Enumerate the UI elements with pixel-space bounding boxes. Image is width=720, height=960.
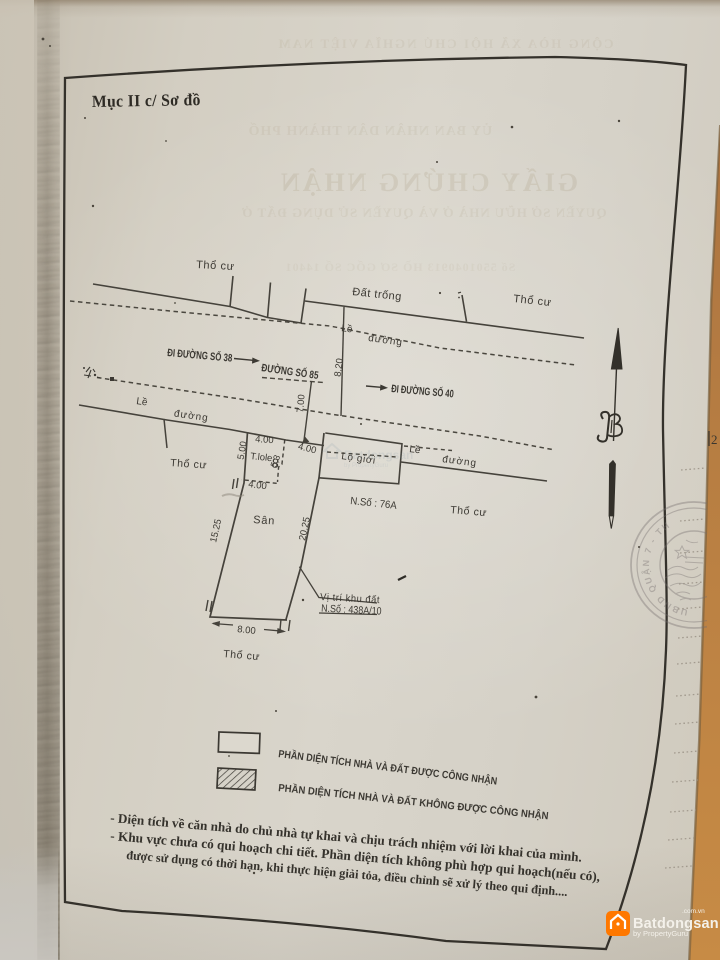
svg-text:QUYỀN SỞ HỮU NHÀ Ở VÀ QUYỀN SỬ: QUYỀN SỞ HỮU NHÀ Ở VÀ QUYỀN SỬ DỤNG ĐẤT …: [241, 205, 606, 220]
svg-text:Sân: Sân: [253, 514, 276, 528]
svg-text:GIẤY CHỨNG NHẬN: GIẤY CHỨNG NHẬN: [278, 168, 578, 197]
svg-text:PHẦN DIỆN TÍCH NHÀ VÀ ĐẤT KHÔ: PHẦN DIỆN TÍCH NHÀ VÀ ĐẤT KHÔNG ĐƯỢC CÔN…: [278, 781, 549, 823]
svg-text:Batdongsan: Batdongsan: [344, 448, 413, 462]
svg-text:Thổ cư: Thổ cư: [513, 293, 553, 309]
svg-text:5.00: 5.00: [236, 440, 250, 460]
svg-text:8.20: 8.20: [333, 358, 346, 378]
svg-text:N.Số : 76A: N.Số : 76A: [350, 495, 398, 512]
svg-text:by PropertyGuru: by PropertyGuru: [344, 463, 388, 469]
svg-text:Thổ cư: Thổ cư: [196, 259, 235, 273]
svg-text:by PropertyGuru: by PropertyGuru: [633, 929, 688, 938]
svg-text:2: 2: [711, 432, 718, 447]
svg-text:7.00: 7.00: [295, 394, 308, 413]
svg-text:N.Số : 438A/10: N.Số : 438A/10: [321, 603, 383, 618]
svg-text:Số 5501040913 HỒ SƠ GỐC SỐ 144: Số 5501040913 HỒ SƠ GỐC SỐ 14401: [285, 259, 516, 274]
svg-text:4.00: 4.00: [248, 479, 268, 492]
svg-text:PHẦN DIỆN TÍCH NHÀ VÀ ĐẤT ĐƯỢC: PHẦN DIỆN TÍCH NHÀ VÀ ĐẤT ĐƯỢC CÔNG NHẬN: [278, 747, 498, 787]
svg-text:đường: đường: [442, 454, 478, 469]
svg-text:8.00: 8.00: [237, 624, 257, 637]
svg-text:Đất trống: Đất trống: [352, 286, 403, 303]
svg-text:.com.vn: .com.vn: [682, 908, 705, 915]
svg-text:Thổ cư: Thổ cư: [450, 504, 488, 519]
svg-text:20.25: 20.25: [297, 516, 313, 542]
svg-text:Lề: Lề: [341, 322, 354, 335]
svg-text:Thổ cư: Thổ cư: [223, 648, 261, 663]
svg-text:Thổ cư: Thổ cư: [170, 457, 208, 472]
svg-text:Mục II c/ Sơ đồ: Mục II c/ Sơ đồ: [92, 89, 201, 111]
svg-text:ĐI ĐƯỜNG SỐ 38: ĐI ĐƯỜNG SỐ 38: [167, 346, 233, 365]
svg-text:CỘNG HÒA XÃ HỘI CHỦ NGHĨA VIỆT: CỘNG HÒA XÃ HỘI CHỦ NGHĨA VIỆT NAM: [276, 36, 613, 51]
svg-text:Lề: Lề: [136, 395, 149, 408]
svg-text:đường: đường: [367, 333, 403, 349]
svg-text:ỦY BAN NHÂN DÂN THÀNH PHỐ: ỦY BAN NHÂN DÂN THÀNH PHỐ: [248, 121, 493, 139]
svg-text:4.00: 4.00: [255, 434, 274, 446]
svg-text:15.25: 15.25: [208, 518, 224, 544]
svg-text:ĐI ĐƯỜNG SỐ 40: ĐI ĐƯỜNG SỐ 40: [391, 382, 455, 400]
